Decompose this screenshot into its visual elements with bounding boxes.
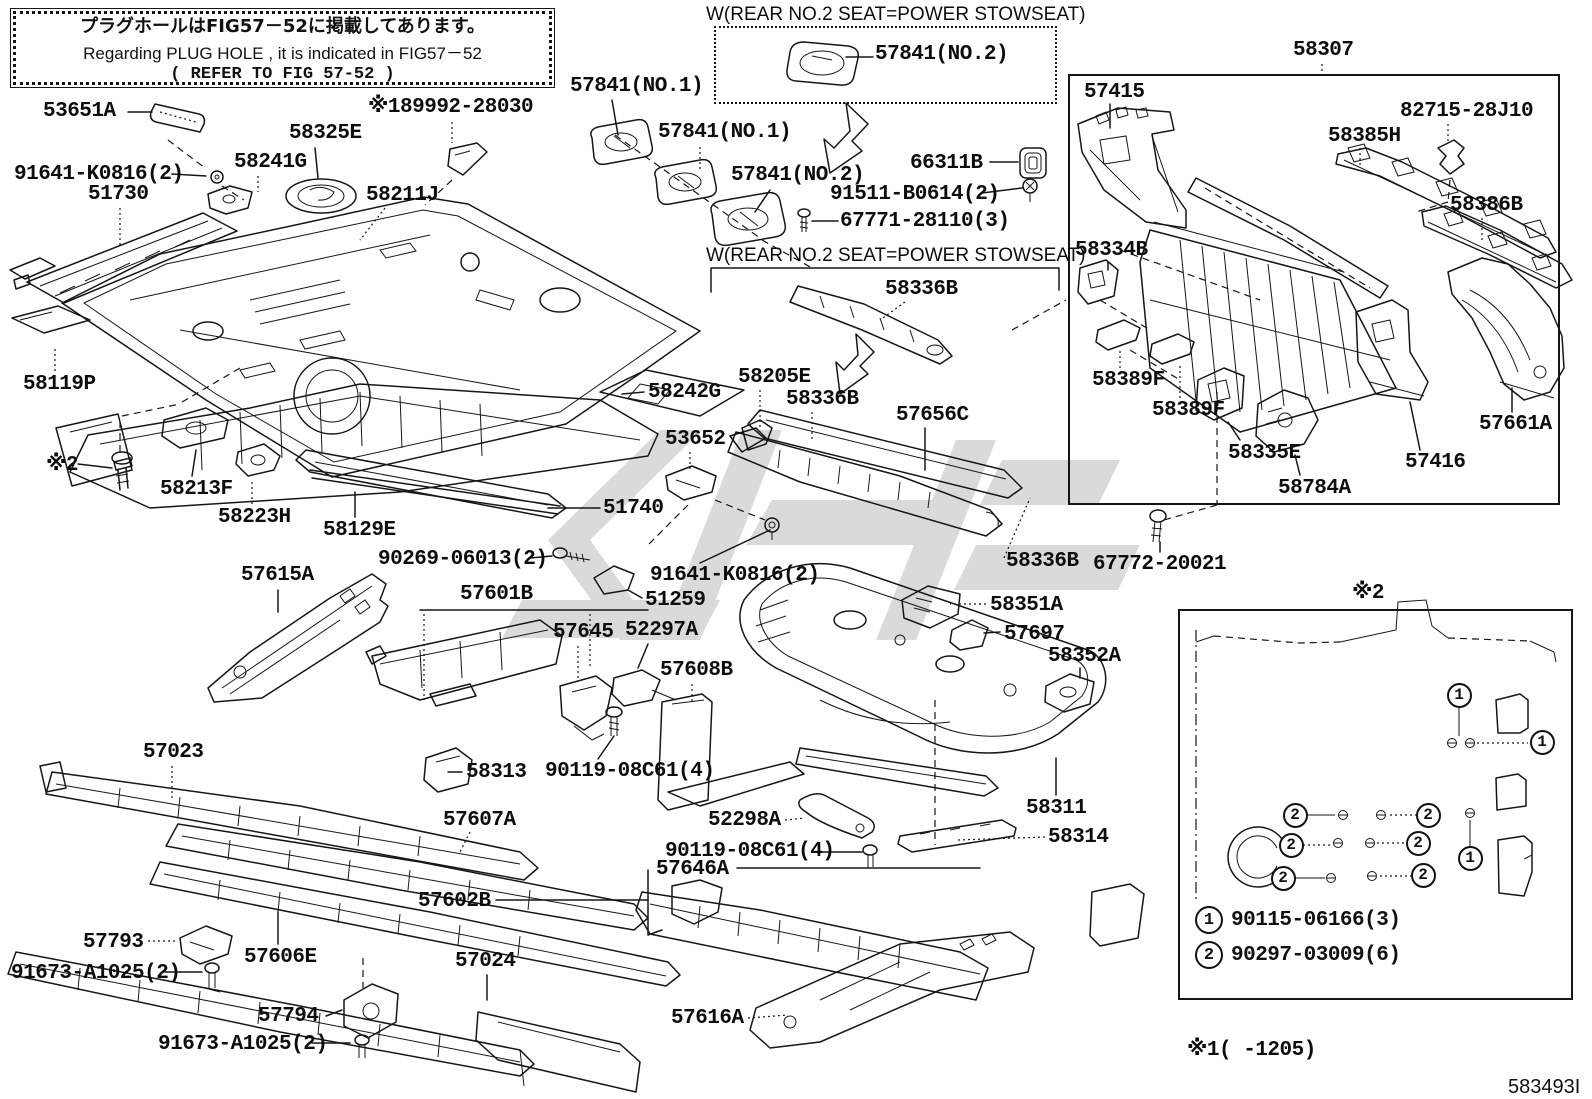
parts-diagram-page: プラグホールはFIG57－52に掲載してあります。 Regarding PLUG… xyxy=(0,0,1592,1099)
legend-part-1: 90115-06166(3) xyxy=(1231,909,1400,932)
figure-code: 583493I xyxy=(1508,1076,1580,1099)
top-left-parts xyxy=(151,104,487,214)
stowseat-caption-top: W(REAR NO.2 SEAT=POWER STOWSEAT) xyxy=(706,5,1086,25)
member-51730 xyxy=(10,213,237,303)
stowseat-option-box xyxy=(714,26,1057,104)
watermark xyxy=(502,430,1140,640)
left-small-parts xyxy=(12,306,566,518)
legend-marker-1: 1 xyxy=(1195,906,1223,934)
plug-hole-info-box: プラグホールはFIG57－52に掲載してあります。 Regarding PLUG… xyxy=(10,8,555,88)
info-line-en: Regarding PLUG HOLE , it is indicated in… xyxy=(83,39,482,64)
applicability-note: ※1( -1205) xyxy=(1187,1040,1316,1061)
legend-part-2: 90297-03009(6) xyxy=(1231,944,1400,967)
legend-row-1: 1 90115-06166(3) xyxy=(1195,906,1400,934)
floor-pan-58211J xyxy=(62,197,700,477)
info-line-ref: ( REFER TO FIG 57-52 ) xyxy=(170,65,394,84)
legend-row-2: 2 90297-03009(6) xyxy=(1195,941,1400,969)
stowseat-brace-58336B xyxy=(711,268,1066,364)
bottom-rails xyxy=(8,762,1144,1092)
stowseat-caption-bottom: W(REAR NO.2 SEAT=POWER STOWSEAT) xyxy=(706,246,1086,266)
bottom-left-clips xyxy=(180,926,398,1058)
rear-body-assembly-box xyxy=(1068,74,1560,505)
info-line-jp: プラグホールはFIG57－52に掲載してあります。 xyxy=(80,12,485,38)
note-box-caption: ※2 xyxy=(1352,583,1384,604)
legend-marker-2: 2 xyxy=(1195,941,1223,969)
